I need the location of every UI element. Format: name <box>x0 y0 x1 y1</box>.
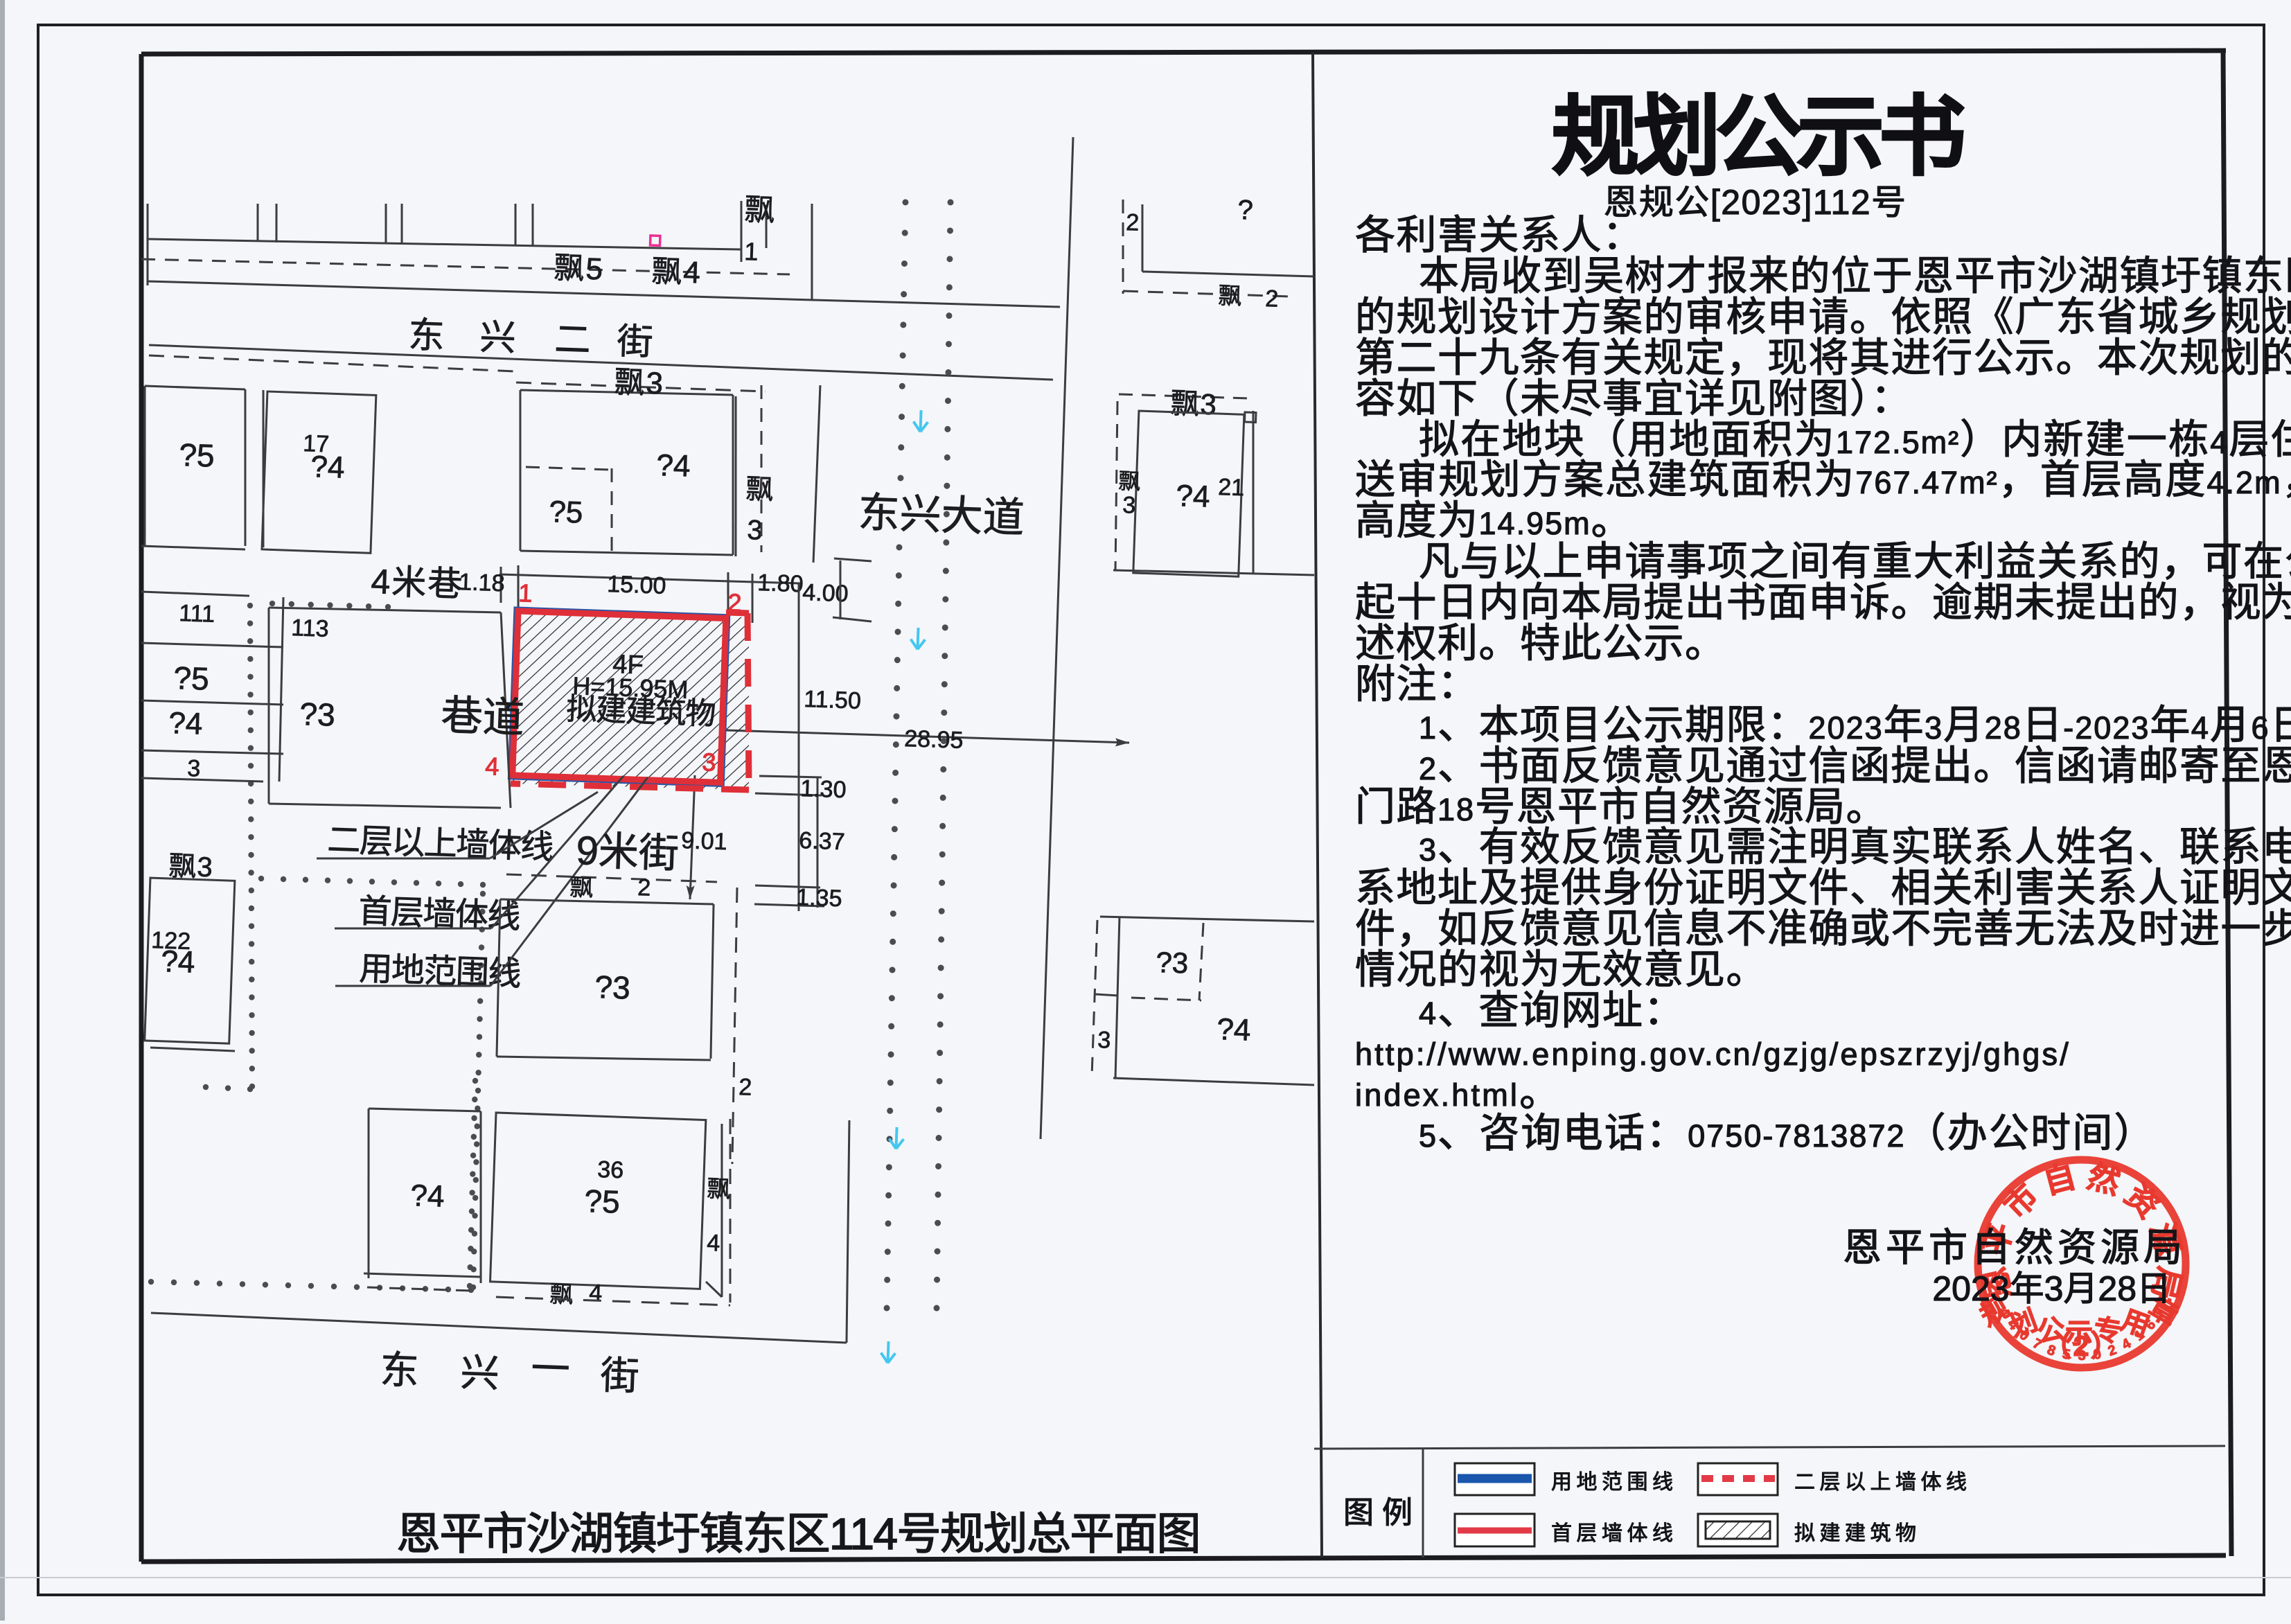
svg-text:飘: 飘 <box>745 474 775 505</box>
svg-text:1: 1 <box>744 237 759 266</box>
svg-text:3: 3 <box>2078 1348 2085 1363</box>
svg-text:飘3: 飘3 <box>168 851 214 883</box>
svg-text:28.95: 28.95 <box>904 725 964 754</box>
svg-text:飘: 飘 <box>549 1281 574 1308</box>
svg-text:111: 111 <box>179 600 215 628</box>
svg-text:飘: 飘 <box>1218 283 1242 310</box>
svg-text:飘: 飘 <box>744 193 776 228</box>
svg-text:1: 1 <box>518 579 533 608</box>
svg-text:2: 2 <box>727 588 742 617</box>
svg-text:?5: ?5 <box>179 436 215 474</box>
svg-text:兴: 兴 <box>460 1350 500 1395</box>
svg-text:?4: ?4 <box>1176 479 1211 514</box>
svg-text:21: 21 <box>1218 474 1245 501</box>
svg-text:街: 街 <box>617 321 654 363</box>
svg-text:兴: 兴 <box>479 317 517 359</box>
svg-text:飘3: 飘3 <box>614 365 665 400</box>
svg-text:1.80: 1.80 <box>757 570 804 597</box>
svg-text:?4: ?4 <box>410 1179 445 1214</box>
svg-text:街: 街 <box>600 1353 640 1398</box>
svg-text:?3: ?3 <box>594 969 631 1006</box>
svg-text:飘3: 飘3 <box>1170 387 1218 421</box>
svg-text:一: 一 <box>531 1346 571 1391</box>
svg-text:?5: ?5 <box>173 660 210 697</box>
svg-text:二: 二 <box>554 319 592 361</box>
svg-text:飘: 飘 <box>569 874 594 901</box>
svg-text:?5: ?5 <box>549 495 584 530</box>
svg-text:东: 东 <box>380 1348 420 1393</box>
svg-text:飘: 飘 <box>1118 468 1141 494</box>
svg-text:?3: ?3 <box>1156 946 1189 980</box>
svg-text:1.35: 1.35 <box>796 884 842 912</box>
svg-text:?5: ?5 <box>584 1183 621 1220</box>
svg-text:2: 2 <box>637 874 651 901</box>
svg-text:?4: ?4 <box>1217 1012 1252 1048</box>
svg-text:4: 4 <box>589 1280 603 1307</box>
svg-text:6.37: 6.37 <box>799 827 845 855</box>
svg-text:?4: ?4 <box>310 450 346 485</box>
svg-text:飘5: 飘5 <box>554 251 605 286</box>
svg-text:2: 2 <box>1265 285 1279 312</box>
svg-text:9米街: 9米街 <box>576 828 680 876</box>
svg-text:4: 4 <box>707 1230 720 1257</box>
svg-text:4米巷: 4米巷 <box>371 562 465 604</box>
svg-text:拟建建筑物: 拟建建筑物 <box>566 692 716 731</box>
svg-text:巷道: 巷道 <box>441 692 525 741</box>
svg-text:113: 113 <box>291 615 330 642</box>
svg-text:飘4: 飘4 <box>651 254 702 290</box>
svg-text:4: 4 <box>485 752 499 781</box>
svg-text:东兴大道: 东兴大道 <box>858 489 1025 541</box>
svg-text:飘: 飘 <box>707 1176 731 1203</box>
svg-text:2: 2 <box>1126 209 1140 236</box>
svg-text:9.01: 9.01 <box>681 827 727 855</box>
svg-text:2: 2 <box>738 1074 752 1101</box>
svg-text:1.30: 1.30 <box>800 775 847 803</box>
svg-text:?: ? <box>1237 195 1254 226</box>
svg-text:3: 3 <box>1122 492 1136 519</box>
svg-text:?4: ?4 <box>168 706 204 741</box>
svg-text:3: 3 <box>187 755 201 782</box>
svg-text:3: 3 <box>1097 1027 1111 1054</box>
svg-text:4.00: 4.00 <box>802 579 849 607</box>
svg-text:3: 3 <box>702 748 716 777</box>
svg-text:15.00: 15.00 <box>607 571 666 599</box>
svg-text:11.50: 11.50 <box>804 686 862 714</box>
svg-text:1.18: 1.18 <box>459 569 505 597</box>
svg-text:东: 东 <box>408 315 445 357</box>
svg-text:?4: ?4 <box>161 944 196 980</box>
svg-text:?4: ?4 <box>656 448 691 484</box>
svg-text:36: 36 <box>597 1156 624 1183</box>
svg-text:?3: ?3 <box>299 696 336 733</box>
